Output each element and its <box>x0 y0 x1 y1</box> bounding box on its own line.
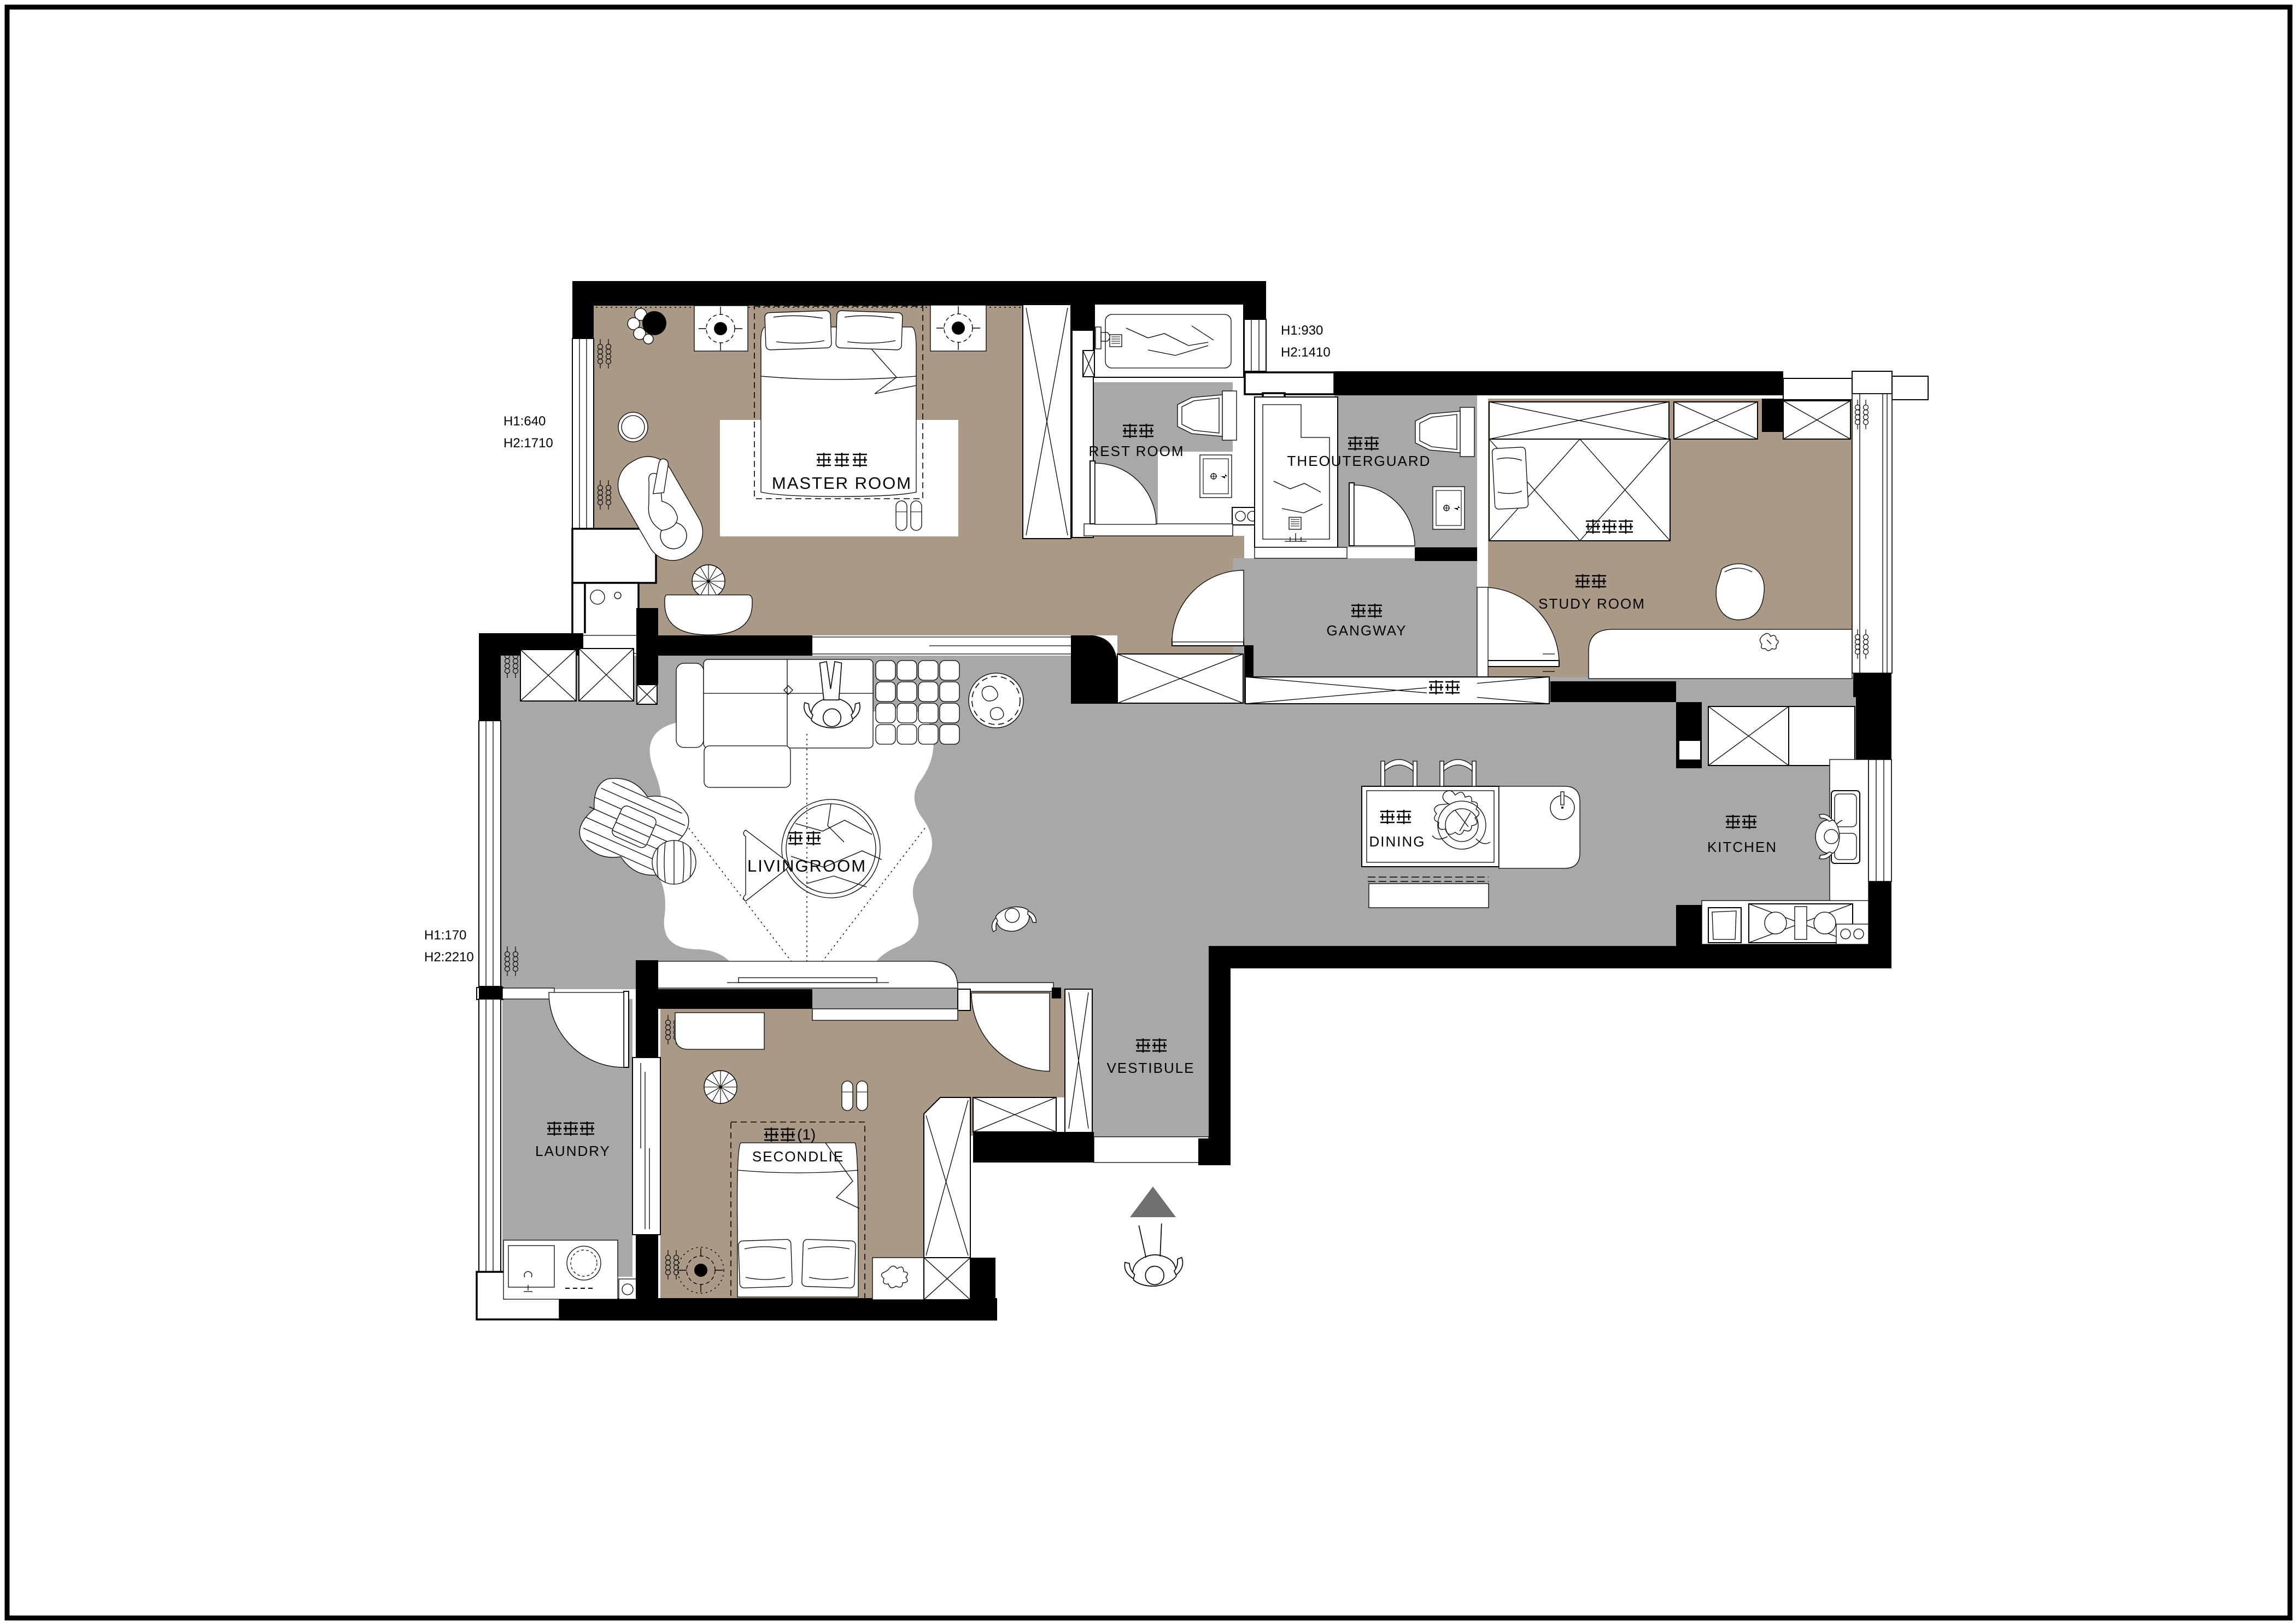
svg-text:H1:930: H1:930 <box>1281 323 1323 338</box>
svg-text:LAUNDRY: LAUNDRY <box>535 1143 611 1159</box>
svg-text:H2:2210: H2:2210 <box>424 950 474 965</box>
svg-text:MASTER ROOM: MASTER ROOM <box>772 474 912 493</box>
svg-text:H2:1710: H2:1710 <box>503 436 553 451</box>
svg-text:KITCHEN: KITCHEN <box>1707 839 1777 855</box>
svg-text:VESTIBULE: VESTIBULE <box>1106 1060 1194 1076</box>
svg-text:H1:640: H1:640 <box>503 414 546 429</box>
svg-text:THEOUTERGUARD: THEOUTERGUARD <box>1287 453 1431 469</box>
svg-text:REST ROOM: REST ROOM <box>1089 443 1185 459</box>
svg-text:STUDY ROOM: STUDY ROOM <box>1538 595 1645 612</box>
svg-text:SECONDLIE: SECONDLIE <box>752 1148 844 1165</box>
svg-text:DINING: DINING <box>1369 833 1426 850</box>
svg-text:H1:170: H1:170 <box>424 928 466 943</box>
svg-text:(1): (1) <box>797 1126 816 1143</box>
svg-text:GANGWAY: GANGWAY <box>1327 622 1407 639</box>
svg-text:H2:1410: H2:1410 <box>1281 345 1331 360</box>
